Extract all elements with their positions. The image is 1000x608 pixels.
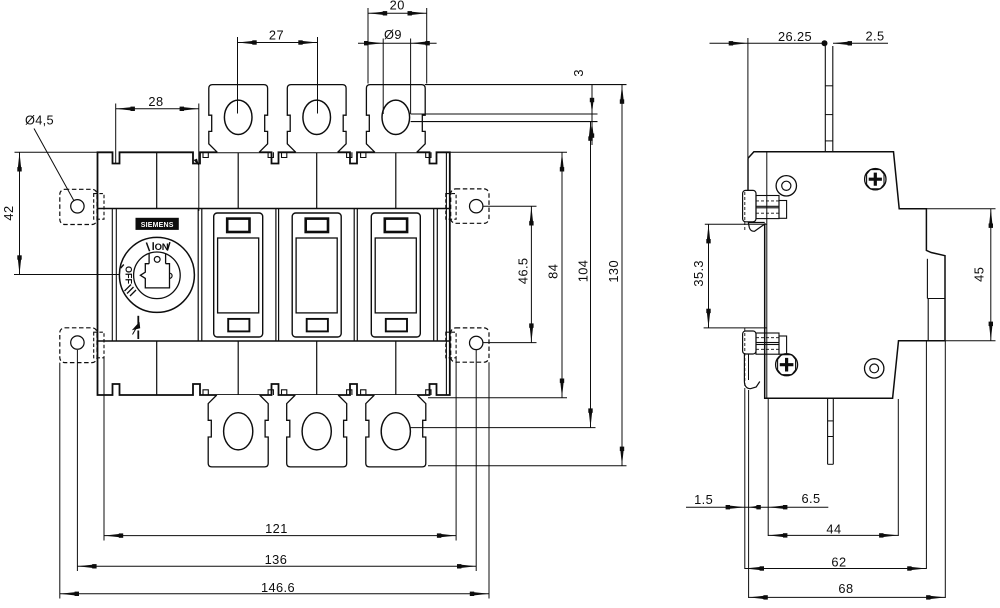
svg-text:Ø4,5: Ø4,5 [25,113,54,128]
svg-text:84: 84 [546,264,561,279]
svg-text:27: 27 [269,28,284,43]
svg-text:146.6: 146.6 [261,580,295,595]
svg-text:3: 3 [571,69,586,76]
svg-text:Ø9: Ø9 [384,27,402,42]
svg-text:45: 45 [972,267,987,282]
svg-text:44: 44 [826,522,841,537]
svg-text:104: 104 [576,260,591,283]
svg-text:1.5: 1.5 [694,492,713,507]
svg-text:28: 28 [148,94,163,109]
svg-text:OFF: OFF [123,266,133,284]
svg-text:62: 62 [831,555,846,570]
svg-text:68: 68 [838,581,853,596]
svg-text:130: 130 [606,260,621,283]
svg-text:6.5: 6.5 [802,491,821,506]
svg-text:26.25: 26.25 [778,29,812,44]
svg-text:42: 42 [1,205,16,220]
svg-text:46.5: 46.5 [516,258,531,285]
svg-text:ON: ON [155,242,169,253]
svg-text:2.5: 2.5 [866,29,885,44]
svg-text:35.3: 35.3 [691,260,706,287]
svg-text:136: 136 [265,552,288,567]
svg-text:121: 121 [265,521,288,536]
svg-text:SIEMENS: SIEMENS [141,222,174,229]
svg-text:20: 20 [390,0,405,12]
